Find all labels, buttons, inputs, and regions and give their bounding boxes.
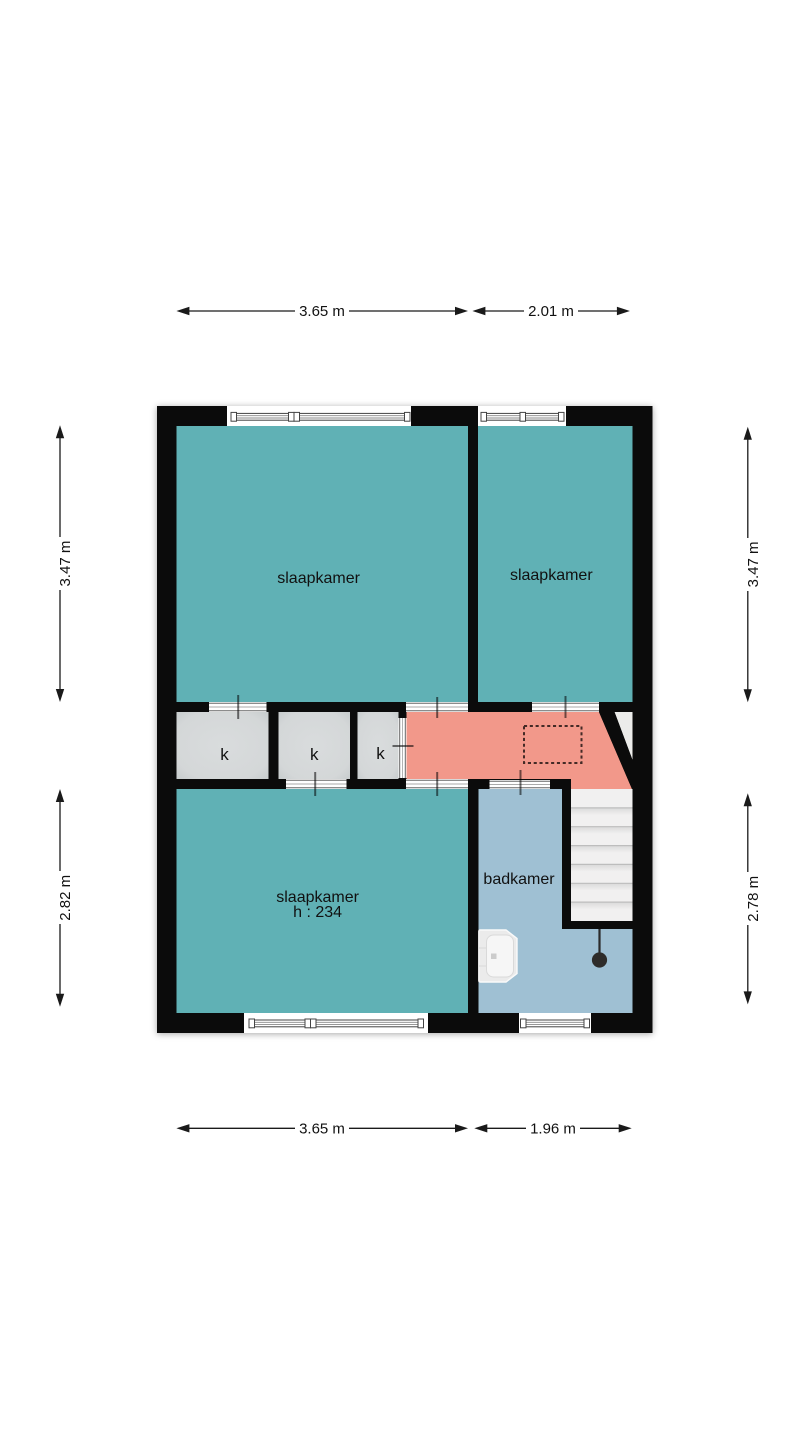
svg-text:k: k <box>220 745 229 764</box>
svg-text:slaapkamer: slaapkamer <box>510 567 593 584</box>
svg-text:k: k <box>310 745 319 764</box>
svg-text:slaapkamer: slaapkamer <box>277 570 360 587</box>
svg-text:3.47 m: 3.47 m <box>57 541 74 587</box>
svg-text:2.01 m: 2.01 m <box>528 303 574 320</box>
svg-text:k: k <box>376 744 385 763</box>
svg-text:h : 234: h : 234 <box>293 904 342 921</box>
svg-text:2.82 m: 2.82 m <box>57 875 74 921</box>
svg-text:1.96 m: 1.96 m <box>530 1120 576 1137</box>
svg-text:3.65 m: 3.65 m <box>299 1120 345 1137</box>
svg-text:3.47 m: 3.47 m <box>745 541 762 587</box>
svg-text:2.78 m: 2.78 m <box>745 876 762 922</box>
svg-text:badkamer: badkamer <box>483 871 555 888</box>
svg-text:3.65 m: 3.65 m <box>299 303 345 320</box>
